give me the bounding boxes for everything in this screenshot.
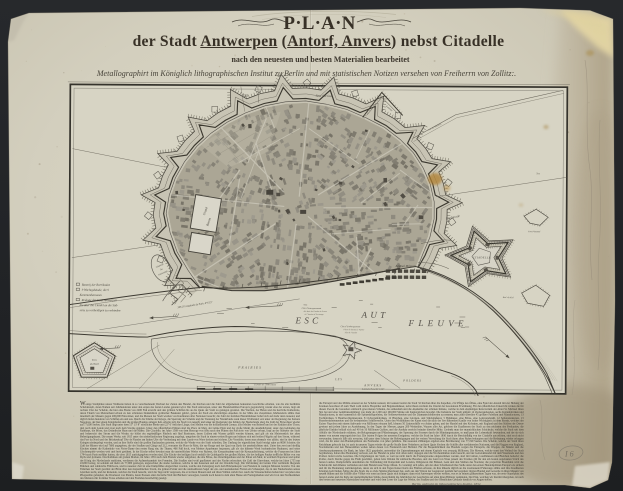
svg-text:Latitude Nord 51°13′8″: Latitude Nord 51°13′8″ (361, 388, 385, 391)
svg-text:Réd. du Kiel: Réd. du Kiel (502, 297, 514, 299)
svg-text:Côte d’Entreposement: Côte d’Entreposement (302, 307, 322, 310)
svg-text:seite zu vertheidigen zu verbi: seite zu vertheidigen zu verbinden (80, 308, 121, 312)
svg-text:XXI: XXI (242, 94, 249, 98)
svg-text:I 6: I 6 (564, 450, 574, 459)
svg-text:Place du Bateau à Vapeur: Place du Bateau à Vapeur (342, 328, 364, 331)
svg-text:CITADELLE: CITADELLE (473, 256, 491, 259)
svg-text:POLDERS: POLDERS (402, 378, 422, 382)
svg-text:des Bois de Flandre à Anvers: des Bois de Flandre à Anvers (304, 310, 328, 313)
svg-text:Fort Pimentel: Fort Pimentel (527, 230, 541, 233)
svg-text:Tête de Flandre: Tête de Flandre (344, 331, 357, 334)
svg-text:Arsenal Militaire: Arsenal Militaire (395, 264, 417, 268)
svg-text:die über die Citadel an die Sü: die über die Citadel an die Süd- (80, 303, 118, 307)
svg-text:LES: LES (334, 377, 342, 381)
svg-text:PRAIRIES: PRAIRIES (237, 366, 262, 370)
svg-text:Redoute der Stadt Antwerpen: Redoute der Stadt Antwerpen (81, 298, 118, 302)
svg-text:ESC: ESC (295, 315, 322, 325)
svg-text:Batterij der Barrikaden: Batterij der Barrikaden (82, 283, 111, 287)
svg-text:Sas: Sas (536, 172, 540, 175)
svg-text:5me Section: 5me Section (316, 94, 333, 98)
svg-text:du Nord: du Nord (90, 363, 99, 366)
svg-text:et Chantier d’Arrimage: et Chantier d’Arrimage (305, 313, 324, 316)
svg-text:ANVERS: ANVERS (364, 383, 382, 387)
svg-text:Fort: Fort (91, 359, 97, 362)
svg-text:Kommunikationen: Kommunikationen (79, 293, 103, 297)
svg-text:Echelle de 2000 Toises: Echelle de 2000 Toises (253, 383, 276, 386)
svg-text:AUT: AUT (361, 310, 389, 320)
svg-text:Côte d’Embarquement: Côte d’Embarquement (341, 325, 361, 328)
